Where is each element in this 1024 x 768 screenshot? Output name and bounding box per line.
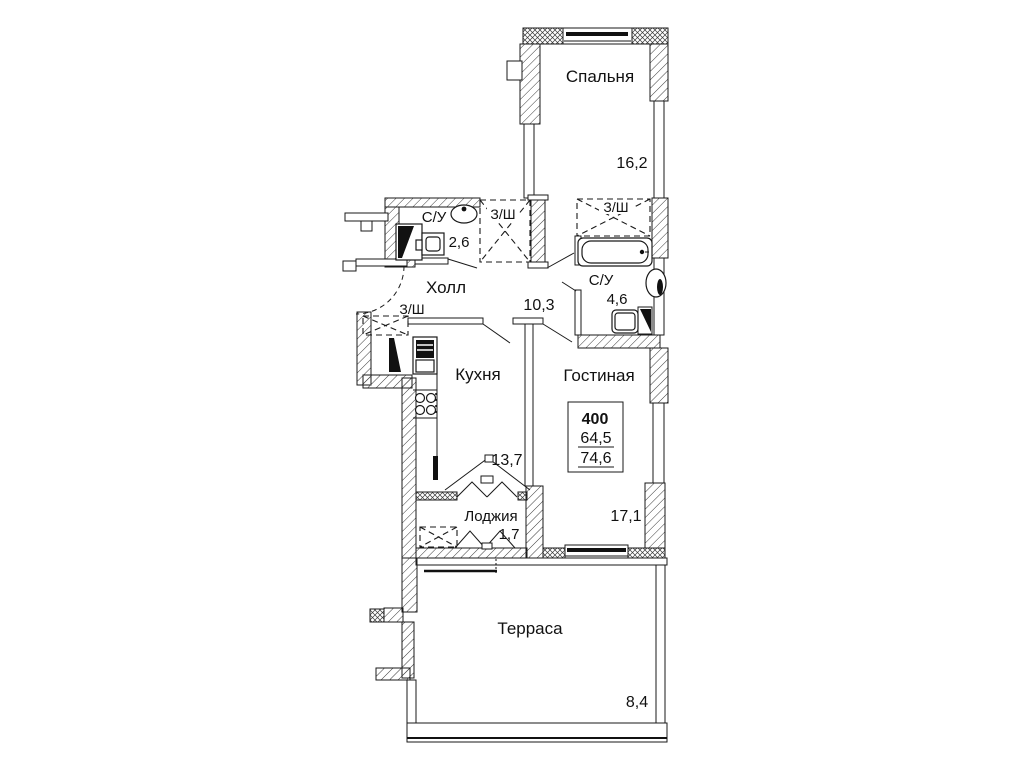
living-window-right: [653, 403, 664, 483]
apartment-total-area: 74,6: [580, 450, 611, 467]
closet-bedroom-label: З/Ш: [603, 199, 628, 215]
entrance-stub: [343, 261, 356, 271]
terrace-area: 8,4: [626, 694, 648, 711]
loggia-label: Лоджия: [464, 508, 517, 525]
door-splay-su-small: [448, 259, 477, 268]
living-room-area: 17,1: [610, 508, 641, 525]
bedroom-area: 16,2: [616, 155, 647, 172]
sink-small-icon: [451, 205, 477, 223]
terrace-left-wall-upper: [402, 558, 417, 612]
wall-closet-left: [357, 312, 371, 385]
closet-door-leaf: [389, 338, 401, 372]
apartment-number: 400: [582, 411, 609, 428]
stove-icon: [413, 390, 437, 418]
wall-top-right: [632, 28, 668, 44]
fridge-icon: [413, 337, 437, 374]
sink-main-icon: [646, 269, 666, 297]
terrace-label: Терраса: [497, 619, 563, 638]
wall-kitchen-living: [525, 324, 533, 486]
wall-hall-kitchen: [408, 318, 483, 324]
toilet-icon: [612, 307, 652, 334]
wall-loggia-living: [526, 486, 543, 558]
closet-loggia: [420, 527, 457, 547]
bathroom-small-area: 2,6: [449, 234, 470, 251]
kitchen-label: Кухня: [455, 365, 501, 384]
wall-living-right-upper: [650, 348, 668, 403]
sill-left: [543, 548, 565, 558]
canopy-post: [361, 221, 372, 231]
door-swing-kitchen: [483, 324, 510, 343]
wall-top-left: [523, 28, 565, 44]
bathroom-main-area: 4,6: [607, 291, 628, 308]
pillar: [531, 200, 545, 262]
wall-bedroom-right-upper: [650, 44, 668, 101]
terrace-pier-3: [376, 668, 410, 680]
terrace-pier-1: [370, 609, 384, 622]
terrace-right-edge: [656, 565, 665, 723]
canopy-edge: [345, 213, 388, 221]
wall-living-right-lower: [645, 483, 665, 548]
wall-loggia-top-left: [416, 492, 457, 500]
wall-bath-bottom: [578, 335, 660, 348]
wall-bathroom-right: [652, 198, 668, 258]
door-swing-living: [543, 324, 572, 342]
closet-hall-label: З/Ш: [399, 301, 424, 317]
door-splay-bath-1: [547, 253, 574, 268]
wall-bedroom-left: [520, 44, 540, 124]
terrace-left-edge-lower: [407, 680, 416, 723]
pillar-cap-bottom: [528, 262, 548, 268]
apartment-living-area: 64,5: [580, 430, 611, 447]
terrace-bottom-band: [407, 723, 667, 742]
living-window-glass: [567, 548, 626, 552]
wall-kitchen-left: [402, 378, 416, 558]
wall-loggia-bottom: [416, 548, 527, 558]
hall-label: Холл: [426, 278, 466, 297]
terrace-top-edge: [416, 558, 667, 565]
pillar-cap-top: [528, 195, 548, 200]
door-splay-bath-2: [562, 282, 576, 291]
terrace-pier-2: [384, 608, 403, 622]
floor-plan: 400 64,5 74,6 Спальня 16,2 С/У 2,6 З/Ш З…: [0, 0, 1024, 768]
floor-plan-drawing: 400 64,5 74,6 Спальня 16,2 С/У 2,6 З/Ш З…: [0, 0, 1024, 768]
living-room-label: Гостиная: [563, 366, 634, 385]
wall-ledge: [507, 61, 522, 80]
bathroom-small-label: С/У: [422, 209, 447, 226]
hall-area: 10,3: [523, 297, 554, 314]
wall-bedroom-left-thin: [524, 124, 534, 198]
sill-right: [628, 548, 665, 558]
apartment-info-box: 400 64,5 74,6: [568, 402, 623, 472]
loggia-area: 1,7: [499, 526, 520, 543]
bedroom-window-glass: [566, 32, 628, 36]
bedroom-window-right: [654, 101, 664, 198]
bedroom-label: Спальня: [566, 67, 634, 86]
kitchen-area: 13,7: [491, 452, 522, 469]
wall-bath-left-lower: [575, 290, 581, 335]
bathtub-icon: [578, 238, 652, 266]
closet-top-label: З/Ш: [490, 206, 515, 222]
bathroom-main-label: С/У: [589, 272, 614, 289]
wall-loggia-top-right: [518, 492, 527, 500]
room-labels: Спальня 16,2 С/У 2,6 З/Ш З/Ш С/У 4,6 Хол…: [396, 67, 648, 711]
wall-divider-head: [513, 318, 543, 324]
